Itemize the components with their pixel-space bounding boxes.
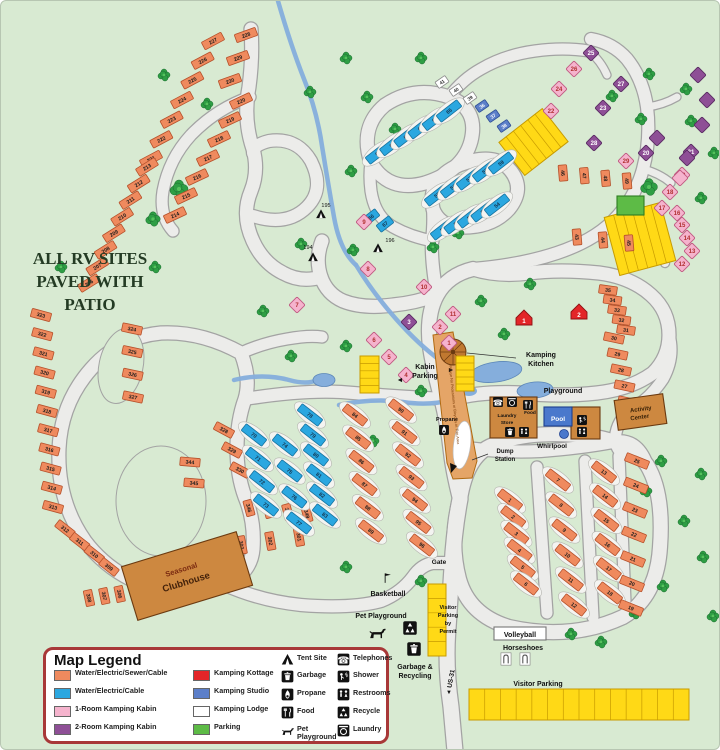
site-323: 323 (30, 308, 52, 321)
svg-text:47: 47 (580, 173, 586, 179)
tree (498, 328, 510, 340)
tree (695, 192, 707, 204)
tree (201, 98, 213, 110)
site-1: 1 (516, 310, 532, 325)
food-icon (523, 400, 533, 410)
site-226: 226 (191, 52, 214, 70)
legend-label: Parking (214, 723, 280, 731)
legend-swatch (193, 724, 210, 735)
svg-text:25: 25 (588, 51, 595, 57)
restroom-icon (519, 427, 529, 437)
restroom-icon (577, 427, 587, 437)
svg-text:24: 24 (556, 87, 563, 93)
legend-swatch (54, 724, 71, 735)
svg-text:20: 20 (643, 151, 650, 157)
site-209: 209 (102, 224, 125, 243)
map-label: Kitchen (528, 361, 554, 368)
svg-text:14: 14 (684, 236, 691, 242)
laundry-icon (507, 397, 517, 407)
horseshoe-icon (520, 653, 530, 665)
site-38: 38 (497, 119, 511, 132)
map-label: ALL RV SITES (33, 249, 147, 268)
svg-text:12: 12 (679, 262, 686, 268)
tree (655, 455, 667, 467)
site-10: 10 (548, 537, 587, 573)
site-47: 47 (579, 167, 589, 184)
site-225: 225 (181, 71, 204, 89)
map-label: Garbage & (397, 664, 432, 671)
legend-swatch (54, 688, 71, 699)
legend-swatch (193, 706, 210, 717)
map-label: Whirlpool (537, 443, 567, 450)
map-label: Volleyball (504, 632, 536, 639)
site-216: 216 (185, 168, 209, 185)
telephone-icon (337, 653, 350, 666)
site-29: 29 (607, 348, 628, 360)
site-307: 307 (99, 587, 111, 604)
tree (340, 561, 352, 573)
site-302: 302 (265, 531, 276, 550)
site-28: 28 (586, 135, 602, 151)
site-74: 74 (265, 427, 304, 463)
propane-icon (439, 425, 449, 435)
garbage-icon (505, 427, 515, 437)
site-75: 75 (270, 453, 309, 489)
site-9: 9 (545, 512, 584, 548)
site-319: 319 (35, 385, 57, 398)
legend-label: Pet Playground (297, 725, 339, 741)
legend-label: Food (297, 707, 339, 715)
legend-label: Kamping Studio (214, 687, 280, 695)
map-label: Store (501, 420, 514, 426)
map-label: by (445, 621, 452, 627)
map-label: Dump (497, 449, 514, 455)
svg-text:29: 29 (623, 159, 630, 165)
site-31: 31 (616, 325, 635, 336)
map-label: 196 (385, 238, 394, 244)
svg-text:27: 27 (618, 82, 625, 88)
map-legend: Map Legend Water/Electric/Sewer/CableWat… (43, 647, 389, 744)
legend-label: Kamping Lodge (214, 705, 280, 713)
site-28: 28 (610, 364, 631, 376)
recycle-icon (403, 621, 417, 635)
map-label: Laundry (498, 413, 517, 419)
legend-label: 1-Room Kamping Kabin (75, 705, 191, 713)
garbage-icon (407, 642, 421, 656)
site-24: 24 (551, 81, 567, 97)
site-37: 37 (486, 109, 500, 122)
site-43: 43 (572, 229, 582, 246)
dog-icon (369, 629, 385, 639)
parking-area (469, 689, 689, 720)
site-kabin (699, 92, 715, 108)
legend-label: Kamping Kottage (214, 669, 280, 677)
site-48: 48 (601, 170, 611, 187)
site-23: 23 (595, 100, 611, 116)
map-label: Pet Playground (355, 613, 406, 620)
site-35: 35 (598, 285, 617, 296)
site-306: 306 (114, 585, 126, 602)
site-222: 222 (150, 130, 173, 148)
site-11: 11 (445, 306, 461, 322)
map-label: Gate (432, 559, 447, 566)
tree (697, 551, 709, 563)
map-label: ▼ (446, 690, 452, 696)
svg-text:46: 46 (559, 170, 565, 176)
legend-title: Map Legend (54, 652, 142, 669)
svg-text:34: 34 (609, 298, 616, 305)
tree (158, 69, 170, 81)
tree (340, 340, 352, 352)
svg-text:22: 22 (548, 109, 555, 115)
site-212: 212 (127, 174, 150, 193)
legend-label: Restrooms (353, 689, 393, 697)
map-label: Playground (544, 388, 583, 395)
svg-text:43: 43 (573, 234, 579, 240)
site-308: 308 (83, 589, 95, 606)
telephone-icon (493, 397, 503, 407)
legend-swatch (193, 688, 210, 699)
site-210: 210 (111, 207, 134, 226)
campground-map: ☎ (0, 0, 720, 750)
svg-text:23: 23 (600, 106, 607, 112)
site-2: 2 (571, 304, 587, 319)
parking-area (456, 356, 474, 391)
map-label: 194 (303, 245, 312, 251)
site-211: 211 (119, 191, 142, 210)
tree (340, 52, 352, 64)
propane-icon (281, 688, 294, 701)
tree (678, 515, 690, 527)
tree (695, 468, 707, 480)
svg-text:13: 13 (689, 249, 696, 255)
svg-text:32: 32 (618, 318, 625, 325)
site-217: 217 (196, 149, 220, 166)
svg-text:16: 16 (674, 211, 681, 217)
map-label: Visitor Parking (513, 681, 562, 688)
map-label: Parking (438, 613, 458, 619)
dog-icon (281, 724, 294, 737)
map-label: Permit (439, 629, 456, 635)
tree (257, 305, 269, 317)
tent-icon (373, 243, 383, 252)
site-322: 322 (31, 328, 53, 341)
site-46: 46 (558, 165, 568, 182)
tree (680, 83, 692, 95)
map-label: 195 (321, 203, 330, 209)
horseshoe-icon (501, 653, 511, 665)
map-label: PAVED WITH (36, 272, 143, 291)
map-label: Pool (551, 416, 565, 423)
site-29: 29 (618, 153, 634, 169)
map-label: Recycling (398, 673, 431, 680)
site-318: 318 (36, 404, 58, 417)
site-345: 345 (184, 478, 205, 488)
site-32: 32 (612, 315, 631, 326)
tree (345, 165, 357, 177)
svg-text:49: 49 (623, 178, 629, 184)
restroom-icon (337, 688, 350, 701)
site-321: 321 (33, 347, 55, 360)
laundry-icon (337, 724, 350, 737)
site-34: 34 (603, 295, 622, 306)
site-49: 49 (622, 173, 632, 190)
svg-text:15: 15 (679, 223, 686, 229)
legend-label: 2-Room Kamping Kabin (75, 723, 191, 731)
legend-swatch (193, 670, 210, 681)
legend-label: Propane (297, 689, 339, 697)
map-label: Food (524, 410, 536, 416)
site-26: 26 (566, 61, 582, 77)
svg-text:48: 48 (602, 175, 608, 181)
site-45: 45 (624, 235, 634, 252)
site-344: 344 (180, 457, 201, 467)
map-canvas: ☎ (1, 1, 720, 750)
legend-label: Shower (353, 671, 393, 679)
recycle-icon (337, 706, 350, 719)
site-33: 33 (607, 305, 626, 316)
legend-label: Garbage (297, 671, 339, 679)
legend-swatch (54, 706, 71, 717)
svg-text:26: 26 (571, 67, 578, 73)
building (617, 196, 644, 215)
site-5: 5 (381, 349, 397, 365)
site-218: 218 (207, 130, 231, 147)
svg-text:45: 45 (625, 240, 631, 246)
site-8: 8 (541, 487, 580, 523)
svg-text:10: 10 (421, 285, 428, 291)
site-320: 320 (34, 366, 56, 379)
tree (708, 147, 720, 159)
legend-label: Water/Electric/Sewer/Cable (75, 669, 191, 677)
site-27: 27 (613, 76, 629, 92)
svg-text:11: 11 (450, 312, 457, 318)
site-12: 12 (674, 256, 690, 272)
garbage-icon (281, 670, 294, 683)
tree (361, 91, 373, 103)
tent-icon (316, 209, 326, 218)
tree (285, 350, 297, 362)
shower-icon (577, 415, 587, 425)
legend-label: Tent Site (297, 654, 339, 662)
parking-area (360, 356, 379, 393)
svg-text:345: 345 (189, 481, 198, 488)
svg-text:33: 33 (614, 308, 621, 315)
map-label: Kabin (415, 364, 434, 371)
map-label: Station (495, 457, 516, 463)
site-6: 6 (366, 332, 382, 348)
svg-text:28: 28 (591, 141, 598, 147)
parking-area (428, 584, 446, 656)
svg-text:1: 1 (522, 318, 526, 325)
site-18: 18 (662, 184, 678, 200)
svg-text:44: 44 (599, 237, 605, 243)
shower-icon (337, 670, 350, 683)
map-label: Parking (412, 373, 438, 380)
tree (415, 52, 427, 64)
site-230: 230 (218, 73, 242, 89)
map-label: Basketball (370, 591, 405, 598)
tree (707, 610, 719, 622)
food-icon (281, 706, 294, 719)
svg-text:35: 35 (605, 288, 612, 295)
tree (149, 261, 161, 273)
tree (606, 90, 618, 102)
svg-text:2: 2 (577, 312, 581, 319)
legend-swatch (54, 670, 71, 681)
map-label: Horseshoes (503, 645, 543, 652)
svg-text:18: 18 (667, 190, 674, 196)
site-227: 227 (201, 32, 224, 50)
site-kabin (690, 67, 706, 83)
tree (475, 295, 487, 307)
site-44: 44 (598, 232, 608, 249)
flag-icon (385, 573, 391, 582)
svg-text:31: 31 (623, 328, 630, 335)
legend-label: Water/Electric/Cable (75, 687, 191, 695)
site-224: 224 (170, 91, 193, 109)
map-label: ◄ (397, 377, 404, 384)
map-label: PATIO (64, 295, 115, 314)
legend-label: Telephones (353, 654, 393, 662)
map-label: Visitor (439, 605, 457, 611)
svg-text:344: 344 (185, 460, 194, 467)
tent-icon (281, 653, 294, 666)
site-327: 327 (122, 391, 143, 403)
site-223: 223 (160, 111, 183, 129)
map-label: Kamping (526, 352, 556, 359)
site-36: 36 (475, 99, 489, 112)
legend-label: Laundry (353, 725, 393, 733)
legend-label: Recycle (353, 707, 393, 715)
site-7: 7 (289, 297, 305, 313)
tree (595, 636, 607, 648)
svg-text:17: 17 (659, 206, 666, 212)
